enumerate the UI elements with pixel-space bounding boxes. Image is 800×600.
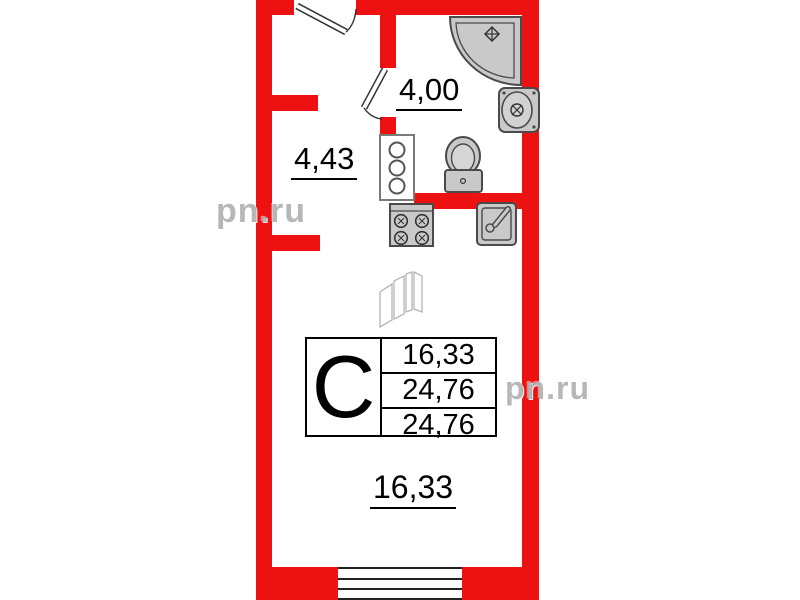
watermark-right: pn.ru [505, 370, 590, 407]
area-total: 24,76 [382, 372, 495, 409]
watermark-left: pn.ru [216, 192, 306, 231]
entrance-door-icon [297, 6, 356, 32]
kitchen-sink-icon [477, 203, 516, 245]
wash-basin-icon [499, 88, 539, 132]
area-total-reduced: 24,76 [382, 409, 495, 442]
bathroom-door-icon [364, 69, 385, 119]
area-living: 16,33 [382, 339, 495, 372]
main-room-area-label: 16,33 [370, 469, 456, 506]
apartment-type-letter: С [307, 339, 382, 435]
floorplan: С 16,33 24,76 24,76 4,00 4,43 16,33 pn.r… [0, 0, 800, 600]
bathroom-area-label: 4,00 [396, 72, 462, 108]
toilet-icon [445, 137, 482, 192]
wardrobe-sketch-icon [380, 272, 422, 327]
apartment-info-table: С 16,33 24,76 24,76 [305, 337, 497, 437]
hallway-area-label: 4,43 [291, 141, 357, 177]
appliance-column-icon [380, 135, 414, 200]
apartment-areas: 16,33 24,76 24,76 [382, 339, 495, 435]
stove-icon [390, 204, 433, 246]
